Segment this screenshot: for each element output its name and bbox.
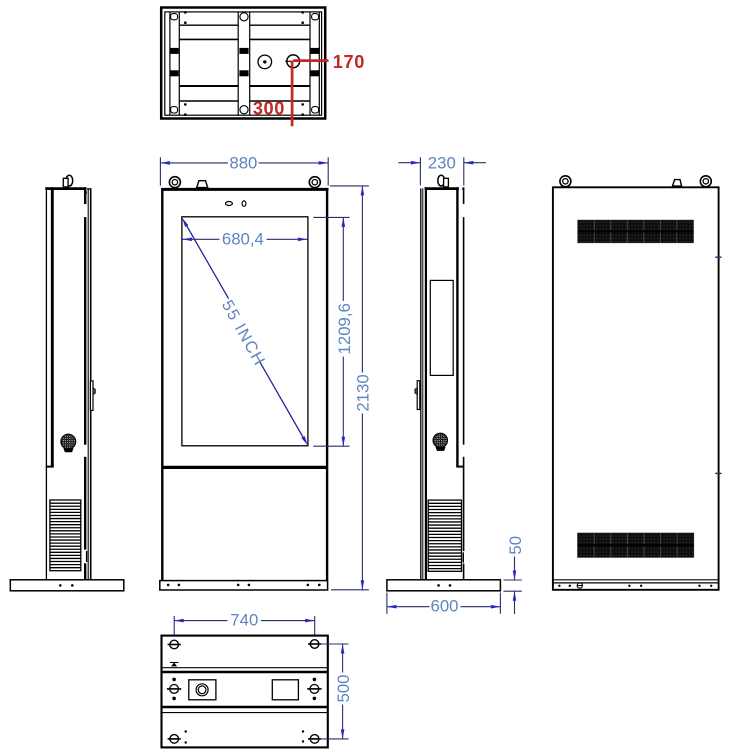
svg-text:740: 740 xyxy=(230,610,258,629)
svg-text:55 INCH: 55 INCH xyxy=(218,297,269,369)
svg-text:170: 170 xyxy=(333,52,365,72)
svg-text:500: 500 xyxy=(334,675,353,703)
svg-text:1209,6: 1209,6 xyxy=(335,303,354,354)
svg-text:680,4: 680,4 xyxy=(222,229,264,248)
svg-text:230: 230 xyxy=(428,154,456,173)
svg-text:300: 300 xyxy=(253,99,285,119)
svg-text:600: 600 xyxy=(431,596,459,615)
svg-text:2130: 2130 xyxy=(354,374,373,411)
svg-text:880: 880 xyxy=(229,154,257,173)
svg-text:50: 50 xyxy=(506,536,525,555)
